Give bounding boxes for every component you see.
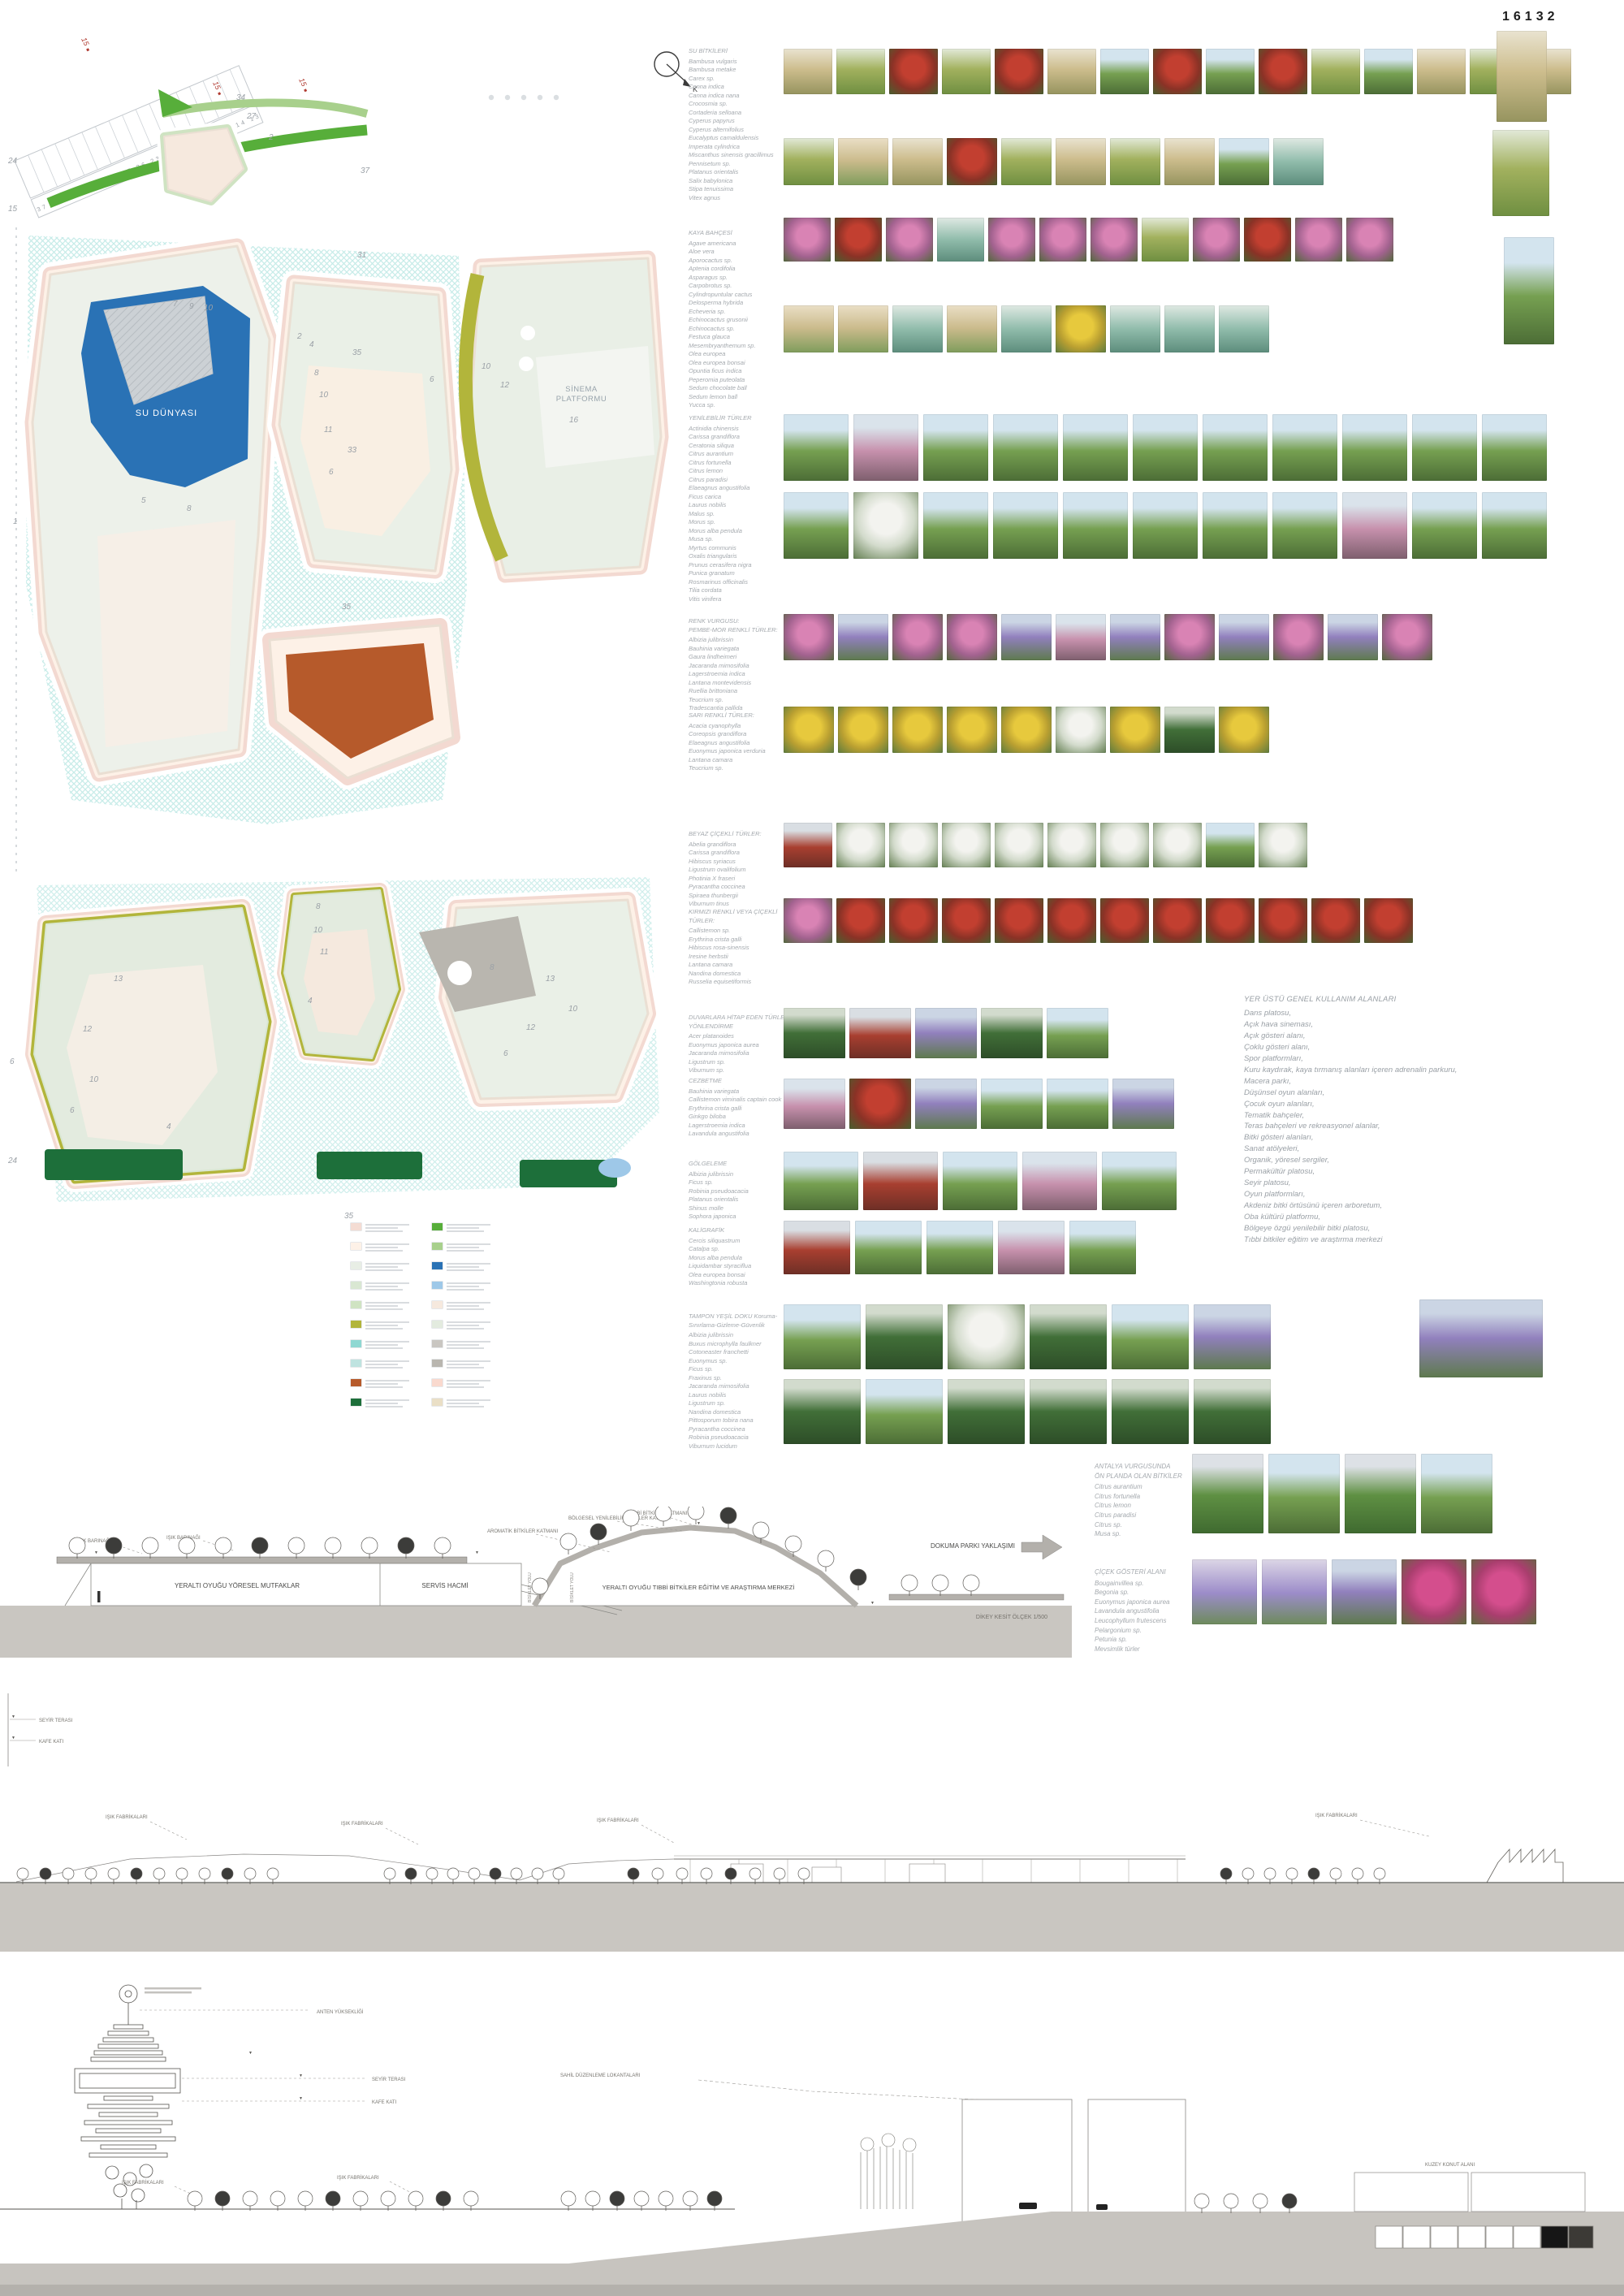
legend-swatch [351,1360,361,1367]
species-item: Viburnum lucidum [689,1442,796,1451]
legend-text-line [365,1344,398,1346]
plant-photo [784,823,832,867]
light-factories-callout: IŞIK FABRİKALARI [106,1814,148,1820]
species-item: Euonymus sp. [689,1357,796,1366]
plant-photo [1311,49,1360,94]
legend-text-line [447,1344,479,1346]
ground-use-item: Açık gösteri alanı, [1244,1031,1569,1042]
species-item: Jacaranda mimosifolia [689,662,796,671]
svg-text:9: 9 [189,302,194,311]
approach-label: DOKUMA PARKI YAKLAŞIMI [931,1542,1015,1550]
plant-photo [1259,49,1307,94]
species-item: Laurus nobilis [689,1391,796,1400]
legend-text-line [365,1308,403,1310]
species-item: Pittosporum tobira nana [689,1416,796,1425]
plant-photo [1206,49,1255,94]
plant-photo [1402,1559,1466,1624]
legend-text-line [447,1347,484,1349]
species-item: Ficus carica [689,493,796,502]
species-section: KIRMIZI RENKLİ VEYA ÇİÇEKLİ TÜRLER:Calli… [689,908,796,987]
svg-text:▼: ▼ [94,1550,98,1555]
svg-text:10: 10 [89,1075,99,1084]
species-item: Erythrina crista galli [689,1105,796,1113]
svg-text:4: 4 [166,1122,171,1131]
ground-use-item: Düşünsel oyun alanları, [1244,1087,1569,1099]
legend-text-line [365,1247,398,1248]
plant-photo [866,1379,943,1444]
species-item: Acer platanoides [689,1032,796,1041]
svg-text:10: 10 [319,391,329,400]
species-item: Miscanthus sinensis gracillimus [689,151,796,160]
plant-photo [948,1379,1025,1444]
svg-text:▼: ▼ [248,2051,253,2056]
ground-use-item: Sanat atölyeleri, [1244,1144,1569,1155]
species-item: Imperata cylindrica [689,143,796,152]
svg-text:6: 6 [430,375,434,384]
ground-use-title: YER ÜSTÜ GENEL KULLANIM ALANLARI [1244,994,1569,1005]
plant-photo [1110,707,1160,753]
species-section: BEYAZ ÇİÇEKLİ TÜRLER:Abelia grandifloraC… [689,830,796,909]
plant-photo [889,898,938,943]
plant-photo [1219,707,1269,753]
svg-text:24: 24 [7,1157,18,1165]
species-item: Liquidambar styraciflua [689,1262,796,1271]
species-item: Aloe vera [689,248,796,257]
svg-text:IŞIK FABRİKALARI: IŞIK FABRİKALARI [1315,1813,1358,1818]
species-item: Pennisetum sp. [689,160,796,169]
species-item: Sedum lemon ball [689,393,796,402]
species-section: RENK VURGUSU: PEMBE-MOR RENKLİ TÜRLER:Al… [689,617,796,713]
species-item: Nandina domestica [689,1408,796,1417]
plant-photo [1047,49,1096,94]
plant-photo [1069,1221,1136,1274]
section-strip-2: SEYİR TERASI KAFE KATI ▼▼ [0,1693,211,1766]
legend-text-line [365,1263,409,1265]
species-section: KALİGRAFİKCercis siliquastrumCatalpa sp.… [689,1226,796,1288]
plant-photo [1219,138,1269,185]
plant-photo [1417,49,1466,94]
svg-text:31: 31 [357,251,366,260]
legend-text-line [365,1399,409,1401]
plant-photo [942,823,991,867]
plant-photo [836,823,885,867]
legend-swatch [351,1340,361,1347]
plant-photo [1153,898,1202,943]
species-item: Photinia X fraseri [689,875,796,884]
species-item: Albizia julibrissin [689,636,796,645]
species-item: Actinidia chinensis [689,425,796,434]
svg-text:27: 27 [246,112,257,121]
plant-photo [838,614,888,660]
svg-text:IŞIK FABRİKALARI: IŞIK FABRİKALARI [597,1818,639,1823]
section-strip-3: IŞIK FABRİKALARI IŞIK FABRİKALARI IŞIK F… [0,1807,1624,1970]
plant-photo [1272,414,1337,481]
plant-photo [1295,218,1342,262]
plant-photo [1412,492,1477,559]
plant-photo [1056,707,1106,753]
species-item: Abelia grandiflora [689,841,796,850]
species-item: Eucalyptus camaldulensis [689,134,796,143]
species-item: Ligustrum sp. [689,1399,796,1408]
petal-center [279,283,451,571]
legend-text-line [447,1289,484,1291]
legend-text-line [365,1383,398,1385]
legend-text-line [447,1250,484,1252]
species-section: TAMPON YEŞİL DOKU Koruma- Sınırlama-Gizl… [689,1312,796,1451]
factory-outline [1487,1849,1563,1883]
species-item: Ruellia brittoniana [689,687,796,696]
plant-photo [1047,1079,1108,1129]
legend-text-line [365,1341,409,1343]
species-item: Cotoneaster franchetti [689,1348,796,1357]
species-item: Lagerstroemia indica [689,670,796,679]
species-section-title: RENK VURGUSU: PEMBE-MOR RENKLİ TÜRLER: [689,617,796,634]
legend-swatch [432,1321,443,1328]
plant-photo [1364,49,1413,94]
plant-photo [1164,707,1215,753]
ground-use-list: YER ÜSTÜ GENEL KULLANIM ALANLARI Dans pl… [1244,994,1569,1246]
species-item: Carpobrotus sp. [689,282,796,291]
legend-text-line [447,1305,479,1307]
species-item: Viburnum tinus [689,900,796,909]
legend-text-line [447,1302,490,1304]
svg-text:IŞIK FABRİKALARI: IŞIK FABRİKALARI [122,2180,164,2186]
legend-swatch [351,1321,361,1328]
north-housing-label: KUZEY KONUT ALANI [1425,2163,1475,2168]
plant-photo [1332,1559,1397,1624]
ground-use-item: Kuru kaydırak, kaya tırmanış alanları iç… [1244,1065,1569,1076]
legend-text-line [447,1406,484,1407]
svg-text:5: 5 [141,496,146,505]
species-item: Gaura lindheimeri [689,653,796,662]
species-item: Delosperma hybrida [689,299,796,308]
plant-photo [1047,1008,1108,1058]
plant-photo [1112,1304,1189,1369]
legend-text-line [447,1386,484,1388]
species-item: Ligustrum sp. [689,1058,796,1067]
species-section-title: YENİLEBİLİR TÜRLER [689,414,796,423]
species-item: Morus alba pendula [689,527,796,536]
species-item: Ficus sp. [689,1365,796,1374]
ground-use-item: Akdeniz bitki örtüsünü içeren arboretum, [1244,1200,1569,1212]
plant-photo [836,49,885,94]
ground-mass [0,1883,1624,1952]
species-item: Iresine herbstii [689,953,796,962]
legend-swatch [432,1223,443,1230]
svg-text:8: 8 [314,369,319,378]
species-item: Hibiscus syriacus [689,858,796,867]
panel-number: 16132 [1502,10,1559,24]
plant-photo [923,492,988,559]
plant-photo [1100,898,1149,943]
species-item: Lavandula angustifolia [689,1130,796,1139]
plant-photo [1112,1379,1189,1444]
plant-photo [1194,1379,1271,1444]
species-item: Crocosmia sp. [689,100,796,109]
car-silhouette [1019,2203,1037,2209]
plant-photo [784,1152,858,1210]
species-item: Yucca sp. [689,401,796,410]
svg-text:2: 2 [268,133,274,142]
svg-text:24: 24 [7,157,18,166]
species-item: Morus sp. [689,518,796,527]
svg-text:10: 10 [313,926,323,935]
plant-photo [838,707,888,753]
legend-text-line [365,1289,403,1291]
legend-text-line [365,1243,409,1245]
plant-photo [1342,492,1407,559]
plant-photo [1268,1454,1340,1533]
species-item: Carissa grandiflora [689,849,796,858]
species-item: Agave americana [689,240,796,249]
petal-cinema: SİNEMA PLATFORMU [465,240,661,575]
plant-photo [995,49,1043,94]
plant-photo [784,492,849,559]
plant-photo [1206,898,1255,943]
species-item: Vitex agnus [689,194,796,203]
species-item: Platanus orientalis [689,1196,796,1204]
plant-photo [1192,1559,1257,1624]
plant-photo [892,305,943,352]
legend-swatch [432,1379,443,1386]
legend-text-line [447,1403,479,1404]
plant-photo [981,1079,1043,1129]
species-item: Cylindropuntular cactus [689,291,796,300]
legend-text-line [447,1325,479,1326]
legend-text-line [365,1380,409,1381]
legend-swatch [351,1282,361,1289]
svg-text:IŞIK FABRİKALARI: IŞIK FABRİKALARI [341,1821,383,1827]
plant-photo [784,49,832,94]
species-item: Canna indica [689,83,796,92]
plant-photo [892,138,943,185]
legend-swatch [432,1360,443,1367]
legend-swatch [351,1301,361,1308]
antenna-height-label: ANTEN YÜKSEKLİĞİ [317,2009,364,2015]
svg-text:15: 15 [297,76,309,88]
plant-photo [889,49,938,94]
legend-text-line [447,1364,479,1365]
ground-use-item: Tematik bahçeler, [1244,1110,1569,1122]
legend-swatch [432,1282,443,1289]
species-item: Lantana camara [689,961,796,970]
svg-text:4: 4 [308,997,313,1005]
legend-text-line [365,1302,409,1304]
plant-photo [915,1008,977,1058]
legend-text-line [447,1367,484,1369]
species-item: Elaeagnus angustifolia [689,739,796,748]
section-strip-4: ▼▼▼ ANTEN YÜKSEKLİĞİ SEYİR TERASI KAFE K… [0,1978,1624,2296]
ground-use-item: Açık hava sineması, [1244,1019,1569,1031]
plant-photo [1364,898,1413,943]
plant-photo [926,1221,993,1274]
plant-photo [1133,492,1198,559]
ground-use-item: Oyun platformları, [1244,1189,1569,1200]
species-item: Spiraea thunbergii [689,892,796,901]
svg-text:12: 12 [500,381,510,390]
species-section-title: TAMPON YEŞİL DOKU Koruma- Sınırlama-Gizl… [689,1312,796,1330]
svg-text:13: 13 [114,975,123,984]
plant-photo [1153,49,1202,94]
observation-tower [75,1985,180,2209]
ground-use-item: Çoklu gösteri alanı, [1244,1042,1569,1053]
species-item: Lantana camara [689,756,796,765]
plant-photo [835,218,882,262]
plant-photo [1091,218,1138,262]
plant-photo [1056,614,1106,660]
species-item: Catalpa sp. [689,1245,796,1254]
svg-text:15: 15 [80,36,91,47]
plant-photo [1039,218,1086,262]
svg-text:13: 13 [546,975,555,984]
plant-photo [1328,614,1378,660]
ground-mass [0,1606,1072,1658]
legend-text-line [365,1403,398,1404]
green-band-light [162,102,367,114]
legend-text-line [365,1367,403,1369]
legend-text-line [365,1282,409,1284]
plant-photo [1133,414,1198,481]
svg-text:2: 2 [296,332,302,341]
legend-text-line [447,1266,479,1268]
plant-photo [1259,898,1307,943]
plant-photo [1206,823,1255,867]
svg-text:11: 11 [320,948,328,957]
plant-photo [1164,138,1215,185]
legend-swatch [351,1399,361,1406]
legend-text-line [365,1347,403,1349]
plant-photo [889,823,938,867]
plant-photo [1419,1299,1543,1377]
legend-text-line [447,1399,490,1401]
plant-photo [1342,414,1407,481]
plant-photo [1001,138,1052,185]
plant-photo [947,305,997,352]
species-item: Carissa grandiflora [689,433,796,442]
plant-photo [1110,614,1160,660]
species-item: Teucrium sp. [689,764,796,773]
plant-photo [784,1008,845,1058]
plant-photo [1504,237,1554,344]
species-item: Elaeagnus angustifolia [689,484,796,493]
plant-photo [1022,1152,1097,1210]
plant-photo [1164,614,1215,660]
species-item: Citrus aurantium [689,450,796,459]
species-item: Aptenia cordifolia [689,265,796,274]
plant-photo [1382,614,1432,660]
plant-photo [1056,305,1106,352]
species-item: Echinocactus grusonii [689,316,796,325]
ground-use-item: Organik, yöresel sergiler, [1244,1155,1569,1166]
svg-text:35: 35 [342,603,352,612]
section-trees [17,1868,1385,1884]
legend-text-line [447,1321,490,1323]
legend-text-line [365,1406,403,1407]
species-item: Rosmarinus officinalis [689,578,796,587]
service-volume-label: SERVİS HACMİ [421,1582,468,1589]
species-item: Jacaranda mimosifolia [689,1382,796,1391]
plant-photo [1273,614,1324,660]
svg-text:▼: ▼ [11,1714,15,1719]
plant-photo [1421,1454,1492,1533]
ground-use-item: Seyir platosu, [1244,1178,1569,1189]
species-item: Callistemon viminalis captain cook [689,1096,796,1105]
plant-photo [838,138,888,185]
species-item: Vitis vinifera [689,595,796,604]
svg-text:7: 7 [173,300,178,309]
plant-photo [1497,31,1547,122]
species-item: Nandina domestica [689,970,796,979]
petal-lower-center [284,890,398,1058]
species-item: Lagerstroemia indica [689,1122,796,1131]
species-item: Lantana montevidensis [689,679,796,688]
svg-text:▼: ▼ [870,1601,875,1606]
species-item: Sophora japonica [689,1213,796,1222]
plant-photo [866,1304,943,1369]
species-section-title: KAYA BAHÇESİ [689,229,796,238]
legend-text-line [447,1341,490,1343]
svg-text:12: 12 [83,1025,93,1034]
species-item: Olea europea [689,350,796,359]
species-item: Mesembryanthemum sp. [689,342,796,351]
species-item: Ficus sp. [689,1178,796,1187]
plant-photo [892,614,943,660]
underground-research-label: YERALTI OYUĞU TIBBİ BİTKİLER EĞİTİM VE A… [603,1584,795,1591]
species-item: Ligustrum ovalifolium [689,866,796,875]
legend-swatch [432,1262,443,1269]
legend-text-line [365,1250,403,1252]
legend-text-line [447,1247,479,1248]
species-item: Bauhinia variegata [689,645,796,654]
plant-photo [998,1221,1065,1274]
site-plan: 37 36 35 33 30 29 27 26 23 22 20 18 16 1… [0,16,674,1234]
species-item: Peperomia puteolata [689,376,796,385]
coast-restaurants-label: SAHİL DÜZENLEME LOKANTALARI [560,2073,641,2078]
species-item: Erythrina crista galli [689,936,796,945]
ground-use-item: Tıbbi bitkiler eğitim ve araştırma merke… [1244,1234,1569,1246]
legend-text-line [447,1286,479,1287]
plant-photo [1047,823,1096,867]
species-item: Ceratonia siliqua [689,442,796,451]
species-item: Aporocactus sp. [689,257,796,266]
species-item: Sedum chocolate ball [689,384,796,393]
species-section: DUVARLARA HİTAP EDEN TÜRLER YÖNLENDİRMEA… [689,1014,796,1075]
legend-text-line [447,1383,479,1385]
legend-text-line [447,1282,490,1284]
species-item: Viburnum sp. [689,1066,796,1075]
plant-photo [784,614,834,660]
species-item: Olea europea bonsai [689,1271,796,1280]
svg-text:35: 35 [344,1212,354,1221]
svg-text:6: 6 [329,468,334,477]
plant-photo [1102,1152,1177,1210]
species-item: Canna indica nana [689,92,796,101]
plant-photo [1311,898,1360,943]
plant-photo [784,305,834,352]
scale-bar [1376,2226,1593,2248]
plant-photo [1272,492,1337,559]
water-world-label: SU DÜNYASI [136,409,197,418]
species-item: Cortaderia selloana [689,109,796,118]
species-item: Pyracantha coccinea [689,883,796,892]
svg-text:▼: ▼ [11,1736,15,1740]
svg-text:6: 6 [503,1049,508,1058]
legend-text-line [365,1325,398,1326]
species-item: Olea europea bonsai [689,359,796,368]
aromatic-layer-callout: AROMATİK BİTKİLER KATMANI [487,1529,558,1534]
species-item: Petunia sp. [1095,1635,1233,1645]
species-item: Echinocactus sp. [689,325,796,334]
